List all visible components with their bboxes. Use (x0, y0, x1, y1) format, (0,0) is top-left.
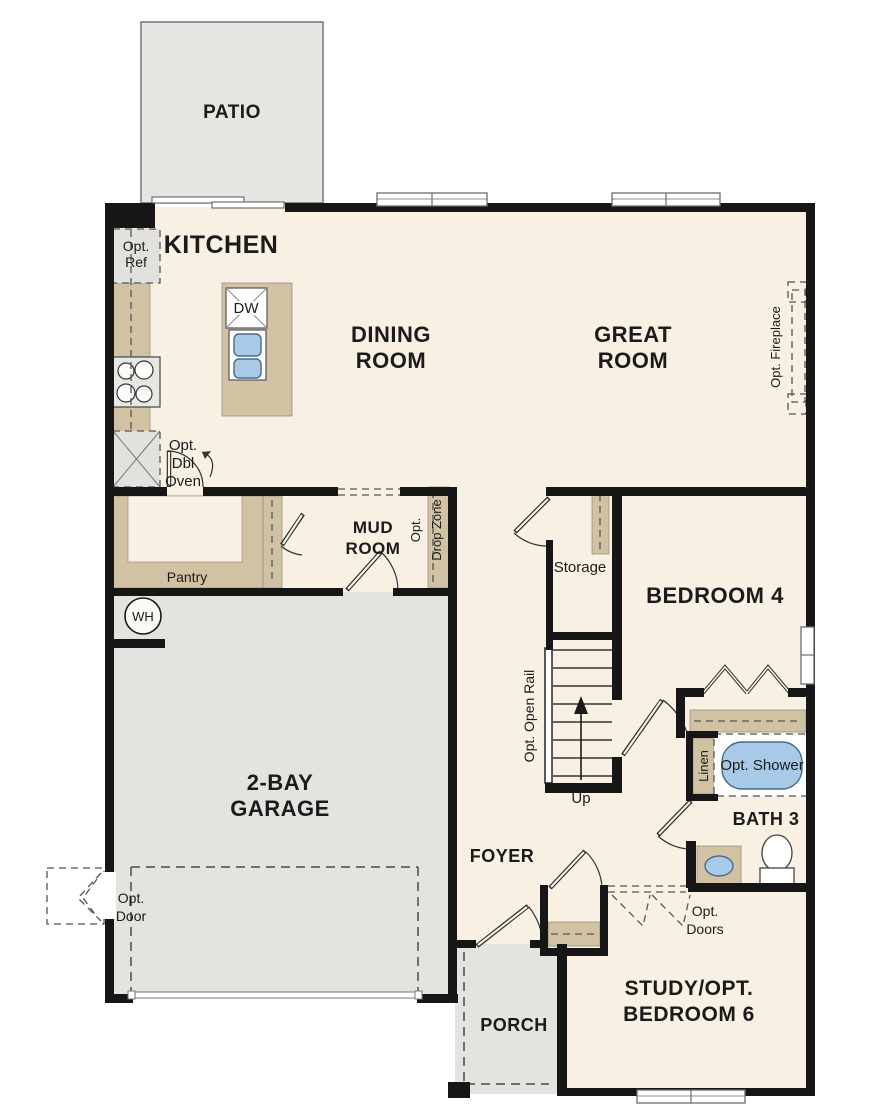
study-label-1: STUDY/OPT. (625, 977, 754, 1000)
bath3-label: BATH 3 (733, 809, 800, 829)
bedroom4-label: BEDROOM 4 (646, 583, 784, 608)
great-room-label-1: GREAT (594, 322, 672, 347)
opt-drop-zone-label-1: Opt. (408, 518, 423, 543)
patio-label: PATIO (203, 102, 261, 123)
kitchen-label: KITCHEN (164, 231, 279, 259)
opt-door-opening (103, 872, 116, 919)
great-room-label-2: ROOM (598, 348, 668, 373)
opt-ref-label-1: Opt. (123, 238, 149, 254)
garage-slab (113, 592, 448, 998)
dishwasher-label: DW (234, 300, 260, 317)
garage-door[interactable] (128, 991, 422, 999)
study-window (637, 1090, 745, 1103)
opt-double-oven-icon (113, 431, 160, 487)
great-room-window (612, 193, 720, 206)
opt-shower-label: Opt. Shower (720, 757, 803, 774)
linen-label: Linen (696, 750, 711, 782)
bedroom4-window (801, 627, 814, 684)
toilet-icon (760, 835, 794, 884)
mud-room-label-1: MUD (353, 518, 393, 537)
foyer-label: FOYER (470, 846, 535, 866)
floor-plan-svg: PATIO KITCHEN DINING ROOM GREAT ROOM MUD… (0, 0, 870, 1110)
opt-dbl-oven-label-3: Oven (165, 473, 201, 490)
up-label: Up (571, 790, 590, 807)
kitchen-sink-icon (229, 330, 266, 380)
garage-label-1: 2-BAY (247, 770, 314, 795)
mud-room-label-2: ROOM (346, 539, 401, 558)
storage-label: Storage (554, 559, 607, 576)
opt-ref-label-2: Ref (125, 254, 147, 270)
opt-drop-zone-label-2: Drop Zone (429, 499, 444, 560)
floor-plan: PATIO KITCHEN DINING ROOM GREAT ROOM MUD… (0, 0, 870, 1110)
garage-label-2: GARAGE (230, 796, 330, 821)
opt-doors-label-2: Doors (686, 921, 723, 937)
bath-vanity-icon (697, 846, 741, 886)
opt-dbl-oven-label-1: Opt. (169, 437, 197, 454)
opt-door-label-2: Door (116, 908, 147, 924)
porch-label: PORCH (480, 1015, 548, 1035)
opt-door-outline (47, 868, 104, 924)
opt-door-label-1: Opt. (118, 890, 144, 906)
opt-dbl-oven-label-2: Dbl (172, 455, 195, 472)
opt-fireplace-label: Opt. Fireplace (768, 306, 783, 388)
pantry-label: Pantry (167, 569, 207, 585)
dining-room-label-1: DINING (351, 322, 431, 347)
study-label-2: BEDROOM 6 (623, 1003, 755, 1026)
dining-window (377, 193, 487, 206)
open-rail (545, 648, 552, 783)
stove-icon (113, 357, 160, 407)
dining-room-label-2: ROOM (356, 348, 426, 373)
opt-open-rail-label: Opt. Open Rail (521, 670, 537, 763)
opt-doors-label-1: Opt. (692, 903, 718, 919)
water-heater-label: WH (132, 609, 154, 624)
